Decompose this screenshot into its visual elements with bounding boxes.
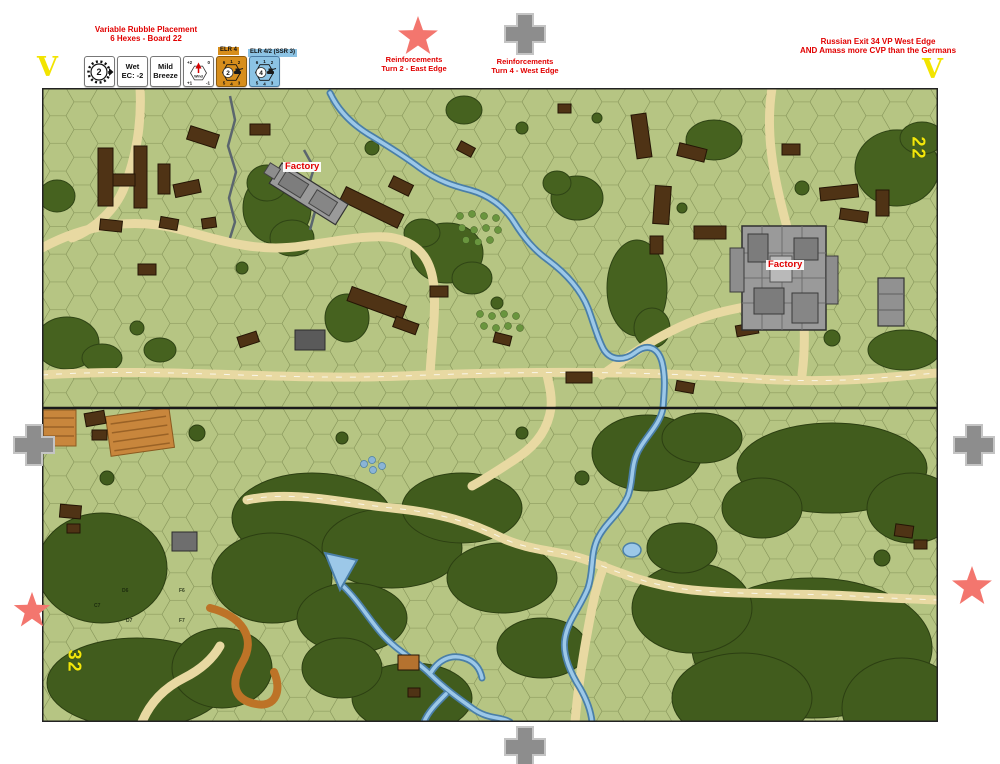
- german-cross-icon: [505, 14, 545, 54]
- hex-label: F7: [179, 618, 185, 624]
- reinforcement-west-line2: Turn 4 - West Edge: [455, 67, 595, 76]
- hex-num: 6: [223, 60, 226, 65]
- hex-num: 4: [230, 82, 233, 87]
- objective-note-line2: AND Amass more CVP than the Germans: [758, 46, 998, 55]
- star-icon: [14, 592, 50, 627]
- wind-tr: 0: [207, 60, 210, 65]
- breeze-counter[interactable]: Mild Breeze: [150, 56, 181, 87]
- small-pond: [623, 543, 641, 557]
- hex-num: 3: [271, 81, 274, 86]
- german-cross-icon: [954, 425, 994, 465]
- arrow-icon: [109, 68, 114, 76]
- breeze-line2: Breeze: [153, 72, 178, 80]
- factory-label-right: Factory: [766, 260, 804, 270]
- board-number-22: 22: [908, 136, 929, 160]
- wind-br: -1: [206, 81, 210, 86]
- russian-star-marker-left[interactable]: [12, 591, 52, 631]
- hex-num: 6: [256, 60, 259, 65]
- hex-num: 3: [238, 81, 241, 86]
- star-icon: [398, 16, 438, 54]
- german-cross-marker-bottom[interactable]: [504, 726, 546, 764]
- hex-num: 1: [230, 59, 233, 64]
- russian-star-marker-top[interactable]: [396, 15, 440, 59]
- elr-russian-counter[interactable]: 6 1 2 3 4 5 4: [249, 56, 280, 87]
- turn-marker-counter[interactable]: 2: [84, 56, 115, 87]
- rubble-note-line1: Variable Rubble Placement: [46, 25, 246, 34]
- vasl-scenario-window: Factory Factory 22 32 D6 C7 D7 F6 F7 Var…: [0, 0, 1000, 764]
- rubble-note-line2: 6 Hexes - Board 22: [46, 34, 246, 43]
- wind-direction-counter[interactable]: +2 0 +1 -1 Wind: [183, 56, 214, 87]
- board-number-32: 32: [64, 649, 85, 673]
- hex-label: D6: [122, 588, 128, 594]
- weather-counter[interactable]: Wet EC: -2: [117, 56, 148, 87]
- wind-tl: +2: [187, 60, 193, 65]
- elr-german-value: 2: [226, 70, 230, 77]
- elr-german-counter[interactable]: 6 1 2 3 4 5 2: [216, 56, 247, 87]
- objective-note-line1: Russian Exit 34 VP West Edge: [758, 37, 998, 46]
- elr-german-label: ELR 4: [218, 47, 239, 55]
- turn-number: 2: [96, 67, 101, 77]
- russian-star-marker-right[interactable]: [950, 565, 994, 609]
- german-cross-marker-right[interactable]: [953, 424, 995, 466]
- hex-num: 1: [263, 59, 266, 64]
- star-icon: [952, 566, 992, 604]
- weather-line2: EC: -2: [122, 72, 144, 80]
- hex-num: 2: [238, 60, 241, 65]
- map-terrain: [42, 88, 938, 722]
- wind-arrow-icon: [196, 63, 202, 69]
- objective-note: Russian Exit 34 VP West Edge AND Amass m…: [758, 37, 998, 56]
- hex-num: 4: [263, 82, 266, 87]
- game-map[interactable]: Factory Factory 22 32 D6 C7 D7 F6 F7: [42, 88, 938, 722]
- factory-label-left: Factory: [283, 162, 321, 172]
- german-cross-icon: [505, 727, 545, 764]
- hex-label: C7: [94, 603, 100, 609]
- german-cross-icon: [14, 425, 54, 465]
- victory-letter-right: V: [922, 56, 943, 83]
- elr-russian-value: 4: [259, 70, 263, 77]
- wind-bl: +1: [187, 81, 193, 86]
- victory-letter-left: V: [37, 54, 58, 81]
- german-cross-marker-left[interactable]: [13, 424, 55, 466]
- hex-num: 2: [271, 60, 274, 65]
- german-cross-marker-top[interactable]: [504, 13, 546, 55]
- hex-num: 5: [256, 81, 259, 86]
- wind-label: Wind: [194, 75, 203, 79]
- hex-num: 5: [223, 81, 226, 86]
- reinforcement-west-note: Reinforcements Turn 4 - West Edge: [455, 58, 595, 76]
- tank-icon: [267, 71, 274, 74]
- factory-small: [878, 278, 904, 326]
- tank-icon: [234, 71, 241, 74]
- rubble-note: Variable Rubble Placement 6 Hexes - Boar…: [46, 25, 246, 44]
- hex-label: F6: [179, 588, 185, 594]
- hex-label: D7: [126, 618, 132, 624]
- factory-right: [730, 226, 838, 330]
